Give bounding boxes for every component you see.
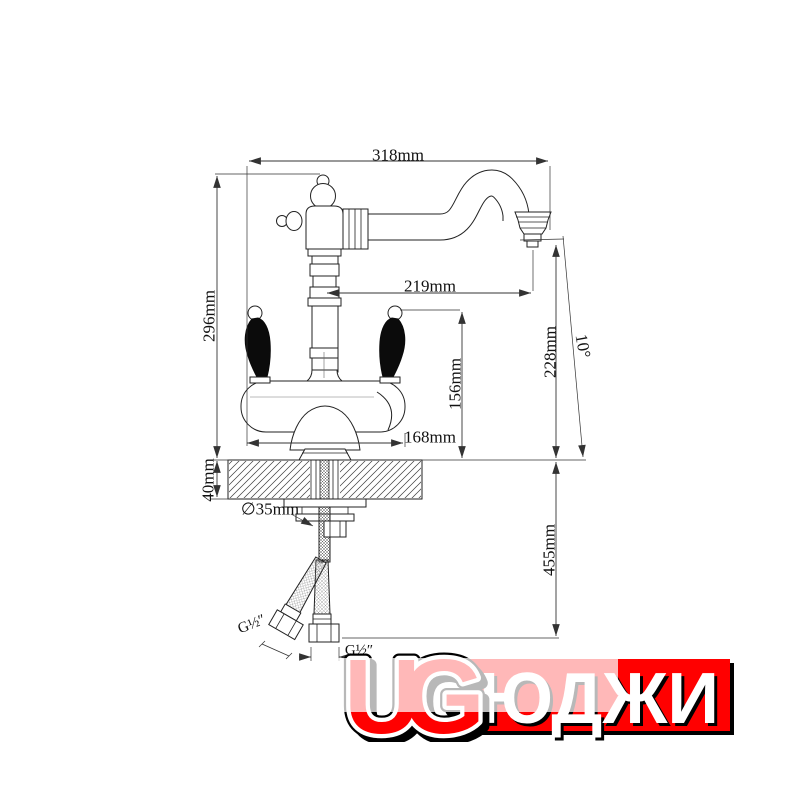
dim-counter-thickness-label: 40mm (200, 458, 217, 501)
dim-reach-label: 219mm (404, 278, 456, 295)
faucet-body (241, 175, 551, 642)
logo-fade-overlay (336, 658, 618, 712)
faucet-technical-drawing-page: 318mm 296mm 219mm 228mm 10° 156mm 168mm … (0, 0, 800, 800)
right-handle (380, 306, 405, 383)
dim-total-width-label: 318mm (372, 147, 424, 164)
countertop-section (228, 460, 422, 499)
escutcheon (299, 449, 351, 460)
spout-outlet (515, 212, 551, 247)
dim-hose-drop-label: 455mm (541, 524, 558, 576)
dim-body-width-label: 168mm (404, 429, 456, 446)
dim-hole-diameter-label: ∅35mm (241, 501, 299, 518)
dim-tilt-angle-label: 10° (573, 333, 594, 359)
left-handle (245, 306, 270, 383)
column-rings (307, 249, 342, 381)
left-knob-ball (286, 212, 302, 231)
brand-logo: ЮДЖИ ЮДЖИ UG UG UG UG (336, 650, 740, 742)
dim-spout-height-label: 228mm (542, 326, 559, 378)
dim-height-label: 296mm (201, 290, 218, 342)
dim-handle-height-label: 156mm (447, 358, 464, 410)
finial-ball (311, 184, 336, 209)
